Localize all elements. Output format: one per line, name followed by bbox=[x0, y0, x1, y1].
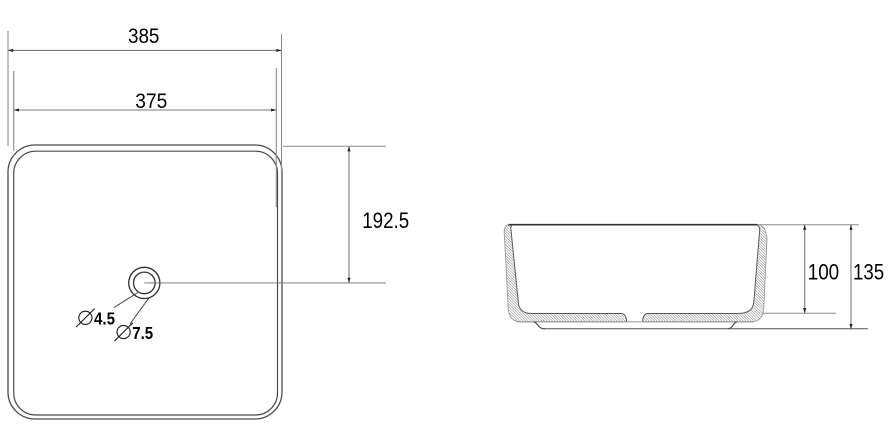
svg-text:7.5: 7.5 bbox=[132, 323, 153, 343]
svg-text:100: 100 bbox=[808, 259, 840, 284]
svg-text:385: 385 bbox=[128, 24, 160, 48]
svg-text:135: 135 bbox=[853, 259, 884, 284]
svg-text:4.5: 4.5 bbox=[94, 309, 115, 329]
svg-text:192.5: 192.5 bbox=[362, 208, 409, 233]
svg-text:375: 375 bbox=[135, 89, 167, 113]
